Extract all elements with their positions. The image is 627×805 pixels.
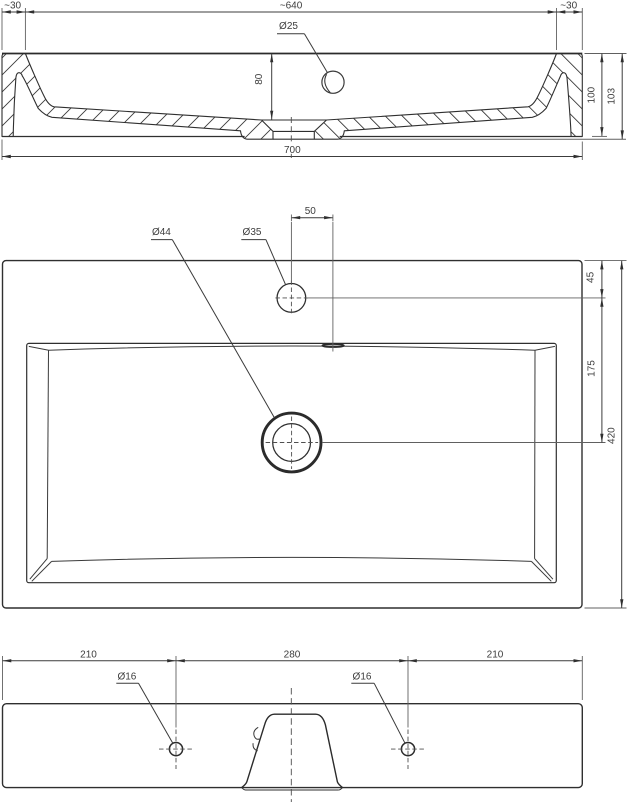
svg-text:210: 210 xyxy=(80,649,97,660)
svg-text:103: 103 xyxy=(607,88,618,105)
svg-text:700: 700 xyxy=(284,145,301,156)
svg-text:Ø44: Ø44 xyxy=(152,227,171,238)
svg-text:210: 210 xyxy=(487,649,504,660)
svg-text:100: 100 xyxy=(586,86,597,103)
svg-text:50: 50 xyxy=(305,206,317,217)
svg-text:~640: ~640 xyxy=(280,1,303,12)
svg-text:Ø25: Ø25 xyxy=(279,21,298,32)
svg-text:280: 280 xyxy=(284,649,301,660)
svg-text:Ø16: Ø16 xyxy=(353,671,372,682)
svg-text:~30: ~30 xyxy=(4,1,21,12)
svg-text:~30: ~30 xyxy=(560,1,577,12)
svg-text:Ø16: Ø16 xyxy=(117,671,136,682)
svg-text:45: 45 xyxy=(585,271,596,283)
svg-text:420: 420 xyxy=(607,427,618,444)
svg-text:Ø35: Ø35 xyxy=(243,227,262,238)
svg-text:80: 80 xyxy=(254,73,265,85)
svg-text:175: 175 xyxy=(587,360,598,377)
